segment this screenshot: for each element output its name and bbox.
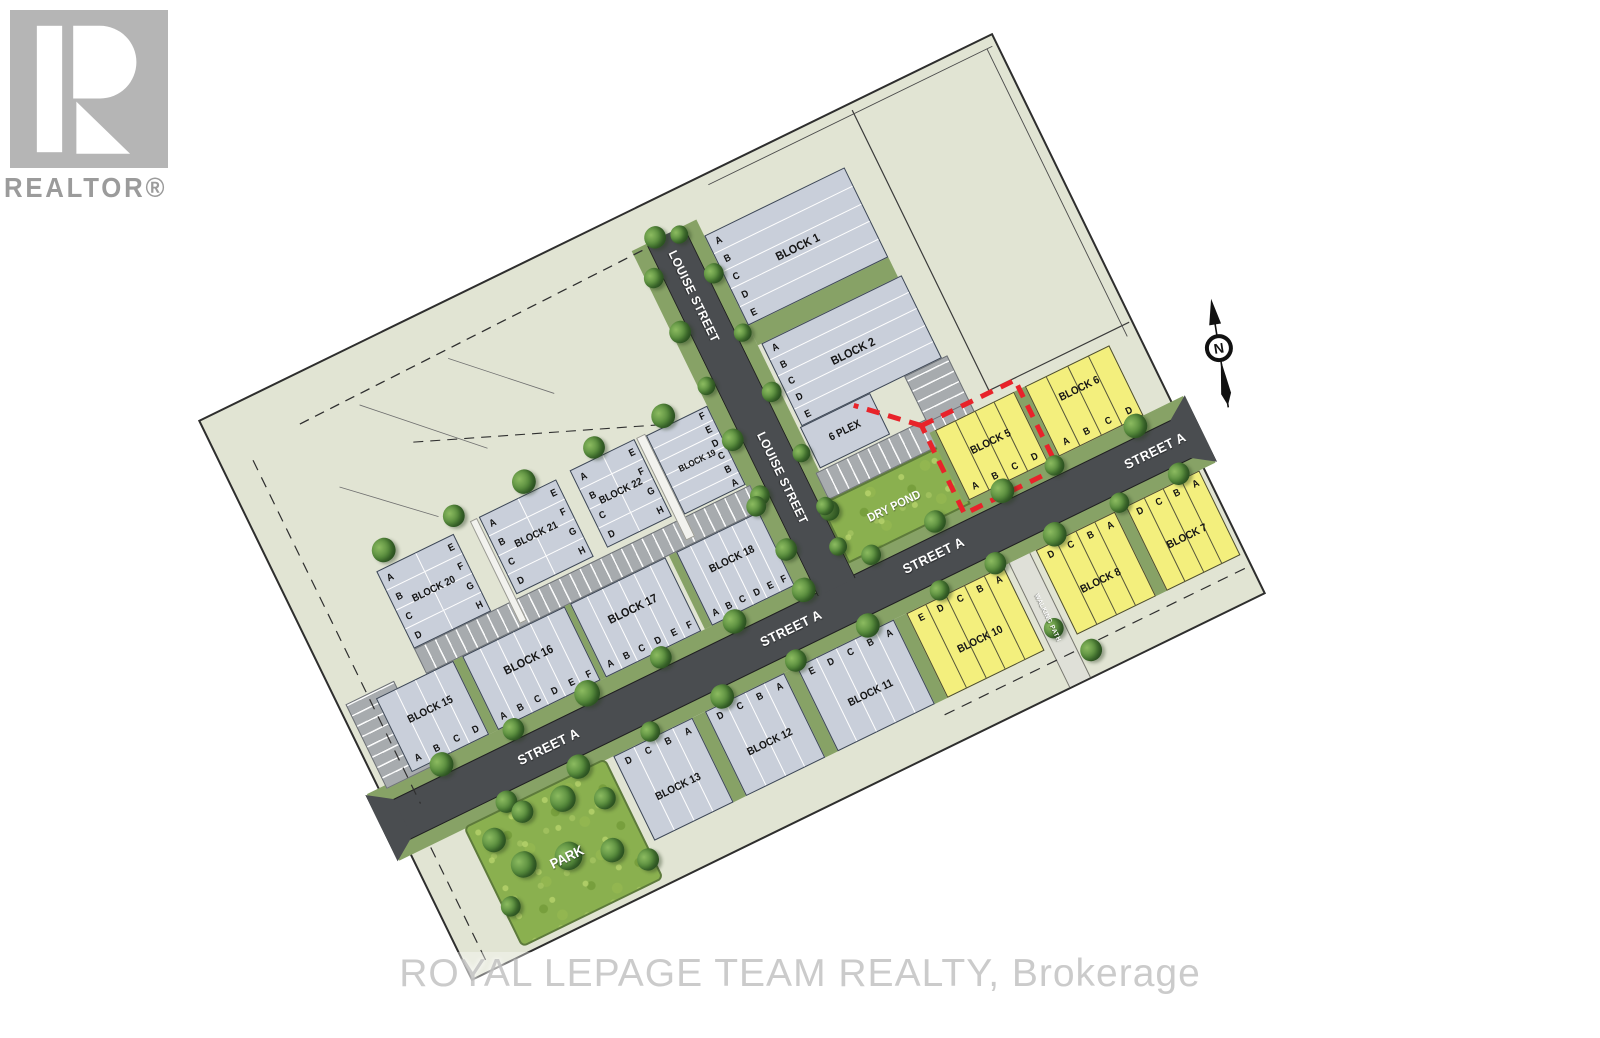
brokerage-watermark: ROYAL LEPAGE TEAM REALTY, Brokerage (0, 952, 1600, 996)
realtor-r-icon (10, 8, 168, 170)
site-plan: 6 PLEX ABCDEBLOCK 1ABCDEBLOCK 2ABCDBLOCK… (198, 33, 1266, 981)
realtor-logo-icon (10, 8, 168, 170)
six-plex-label: 6 PLEX (827, 418, 863, 444)
north-compass: N (1179, 292, 1261, 419)
realtor-logo-wordmark: REALTOR® (4, 172, 225, 204)
tree-icon (439, 501, 468, 530)
site-plan-page: REALTOR® N 6 PLEX (0, 0, 1600, 1038)
